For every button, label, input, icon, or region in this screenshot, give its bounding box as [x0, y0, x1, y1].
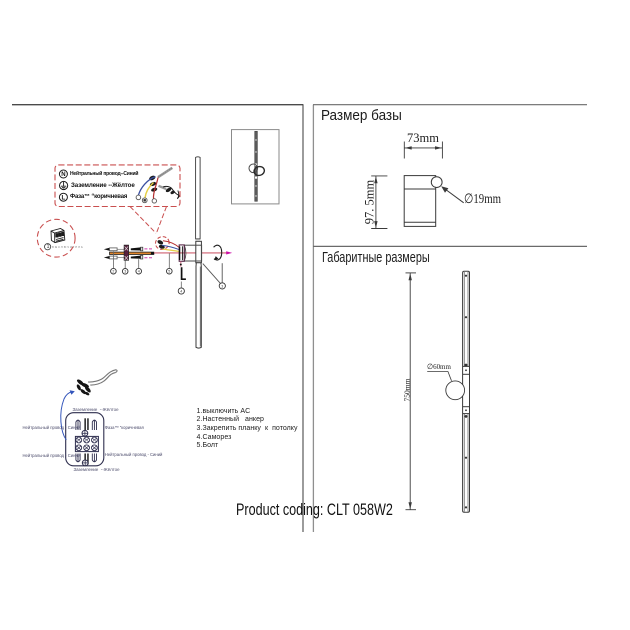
svg-text:L: L — [62, 195, 66, 202]
svg-text:3: 3 — [221, 284, 223, 288]
svg-text:4: 4 — [180, 289, 182, 293]
svg-text:3: 3 — [124, 270, 126, 274]
svg-text:4: 4 — [138, 270, 140, 274]
svg-text:5: 5 — [168, 270, 170, 274]
svg-text:N: N — [61, 172, 65, 178]
svg-text:2: 2 — [112, 270, 114, 274]
